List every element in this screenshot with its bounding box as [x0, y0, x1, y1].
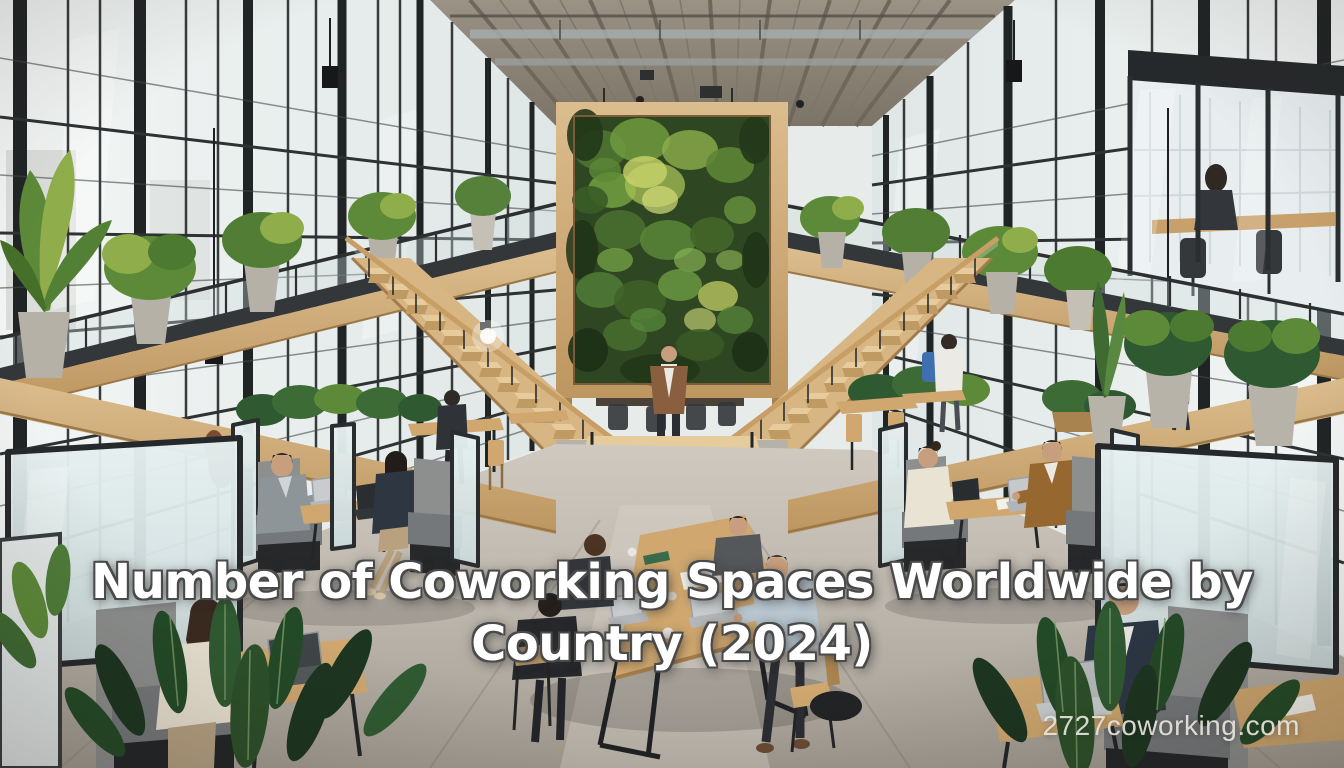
coworking-photo: Number of Coworking Spaces Worldwide by … [0, 0, 1344, 768]
watermark: 2727coworking.com [1042, 710, 1300, 742]
title-line-2: Country (2024) [0, 613, 1344, 675]
title-overlay: Number of Coworking Spaces Worldwide by … [0, 551, 1344, 675]
title-line-1: Number of Coworking Spaces Worldwide by [0, 551, 1344, 613]
